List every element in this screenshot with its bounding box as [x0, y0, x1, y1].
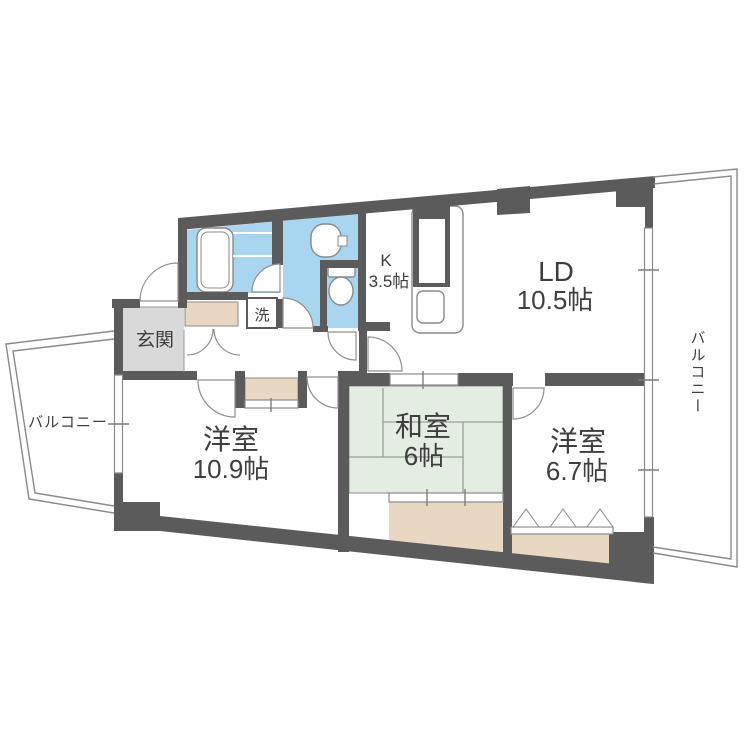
ld-japanese-wall-left	[349, 373, 390, 386]
balcony-left-label: バルコニー	[28, 414, 108, 431]
top-wall-pillar-mid	[497, 186, 530, 215]
corridor-end-wall	[359, 330, 367, 372]
kitchen-left-wall	[358, 205, 366, 323]
corridor-bottom-wall	[114, 371, 197, 380]
toilet-bottom-stub	[313, 326, 328, 332]
top-wall-pillar-right	[616, 184, 653, 228]
western1-size: 10.9帖	[193, 454, 270, 484]
folding-door-mark3	[587, 509, 613, 527]
corner-block-bottom-left	[114, 502, 160, 531]
sliding-door-ld-japanese	[390, 374, 458, 385]
cabinet-door-left	[187, 329, 213, 355]
closet1-left-wall	[235, 371, 245, 408]
western1-door	[198, 380, 235, 417]
toilet-top-wall	[320, 260, 358, 268]
western1-name: 洋室	[203, 424, 259, 455]
entrance-door	[140, 263, 178, 301]
folding-door-mark2	[550, 509, 576, 527]
western2-door	[513, 388, 544, 419]
ld-western2-wall	[545, 373, 653, 386]
sink-tap	[338, 236, 347, 246]
bathtub-inner	[201, 232, 229, 288]
western2-name: 洋室	[550, 426, 606, 457]
entrance-label: 玄関	[136, 329, 174, 351]
japanese-name: 和室	[395, 411, 451, 442]
western2-size: 6.7帖	[546, 456, 608, 486]
laundry-label: 洗	[254, 307, 269, 324]
right-wall-lower	[644, 517, 654, 535]
left-wall-lower	[114, 473, 123, 507]
folding-door-mark1	[513, 509, 539, 527]
floor-plan: 玄関 洗 K 3.5帖 LD 10.5帖 洋室 10.9帖 和室 6帖 洋室 6…	[0, 0, 750, 750]
western1-door2	[307, 377, 338, 408]
window-right	[645, 228, 653, 517]
shoe-cabinet	[185, 302, 238, 326]
left-wall-upper	[114, 299, 123, 375]
japanese-room-left-wall	[338, 371, 349, 552]
closet-japanese-sliding-door	[389, 493, 503, 502]
cabinet-door-right	[214, 329, 240, 355]
kitchen-size: 3.5帖	[369, 272, 410, 291]
bath-washroom-wall	[272, 216, 283, 265]
toilet-bowl-icon	[329, 277, 353, 305]
japanese-size: 6帖	[404, 441, 444, 471]
toilet-left-wall	[320, 268, 327, 328]
ld-name: LD	[538, 256, 574, 287]
bathroom-bottom-wall	[182, 292, 248, 300]
kitchen-name: K	[380, 251, 392, 270]
closet1-right-wall	[298, 371, 307, 408]
balcony-right-label: バルコニー	[689, 330, 706, 415]
closet-western2-track	[511, 527, 613, 534]
sink-icon	[311, 224, 341, 257]
ld-size: 10.5帖	[517, 285, 594, 315]
kitchen-counter-top	[419, 219, 445, 283]
kitchen-sink-icon	[417, 291, 444, 323]
kitchen-bottom-stub	[358, 322, 390, 331]
closet-western1	[245, 378, 298, 400]
ld-door	[368, 337, 402, 371]
toilet-door	[328, 332, 356, 360]
